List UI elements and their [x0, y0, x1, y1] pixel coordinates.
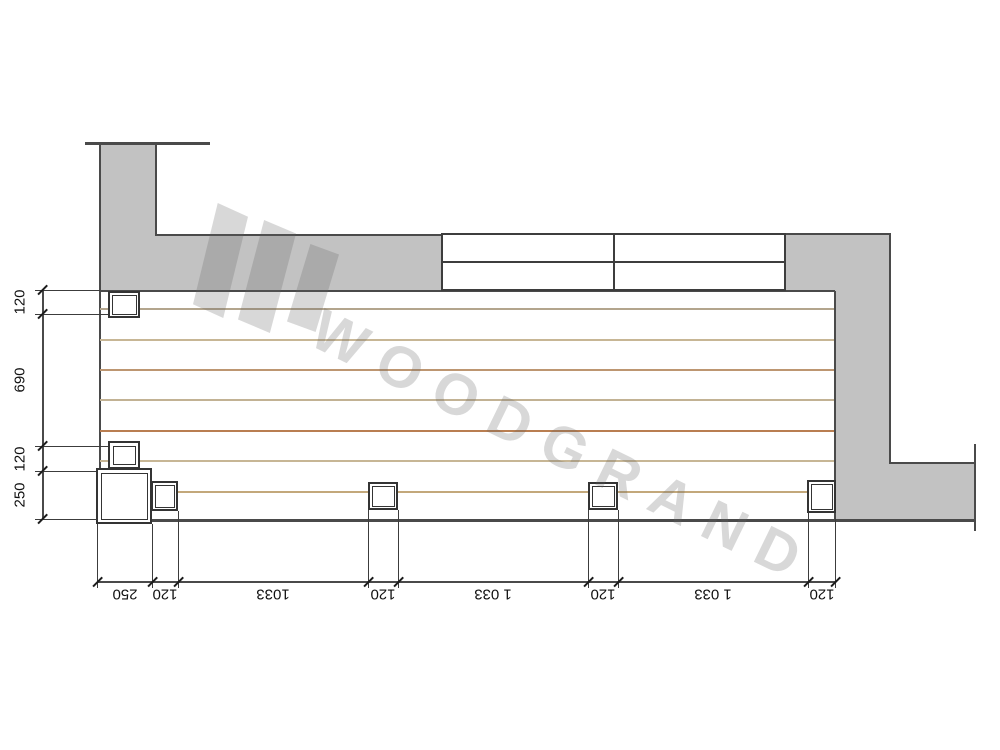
watermark-text: WOODGRAND: [301, 296, 827, 598]
watermark-logo-shape: [238, 220, 296, 333]
floor-plan-drawing: 12069012025025012010331201 0331201 03312…: [0, 0, 1000, 750]
watermark: WOODGRAND: [0, 0, 1000, 750]
watermark-logo-shape: [193, 203, 248, 318]
